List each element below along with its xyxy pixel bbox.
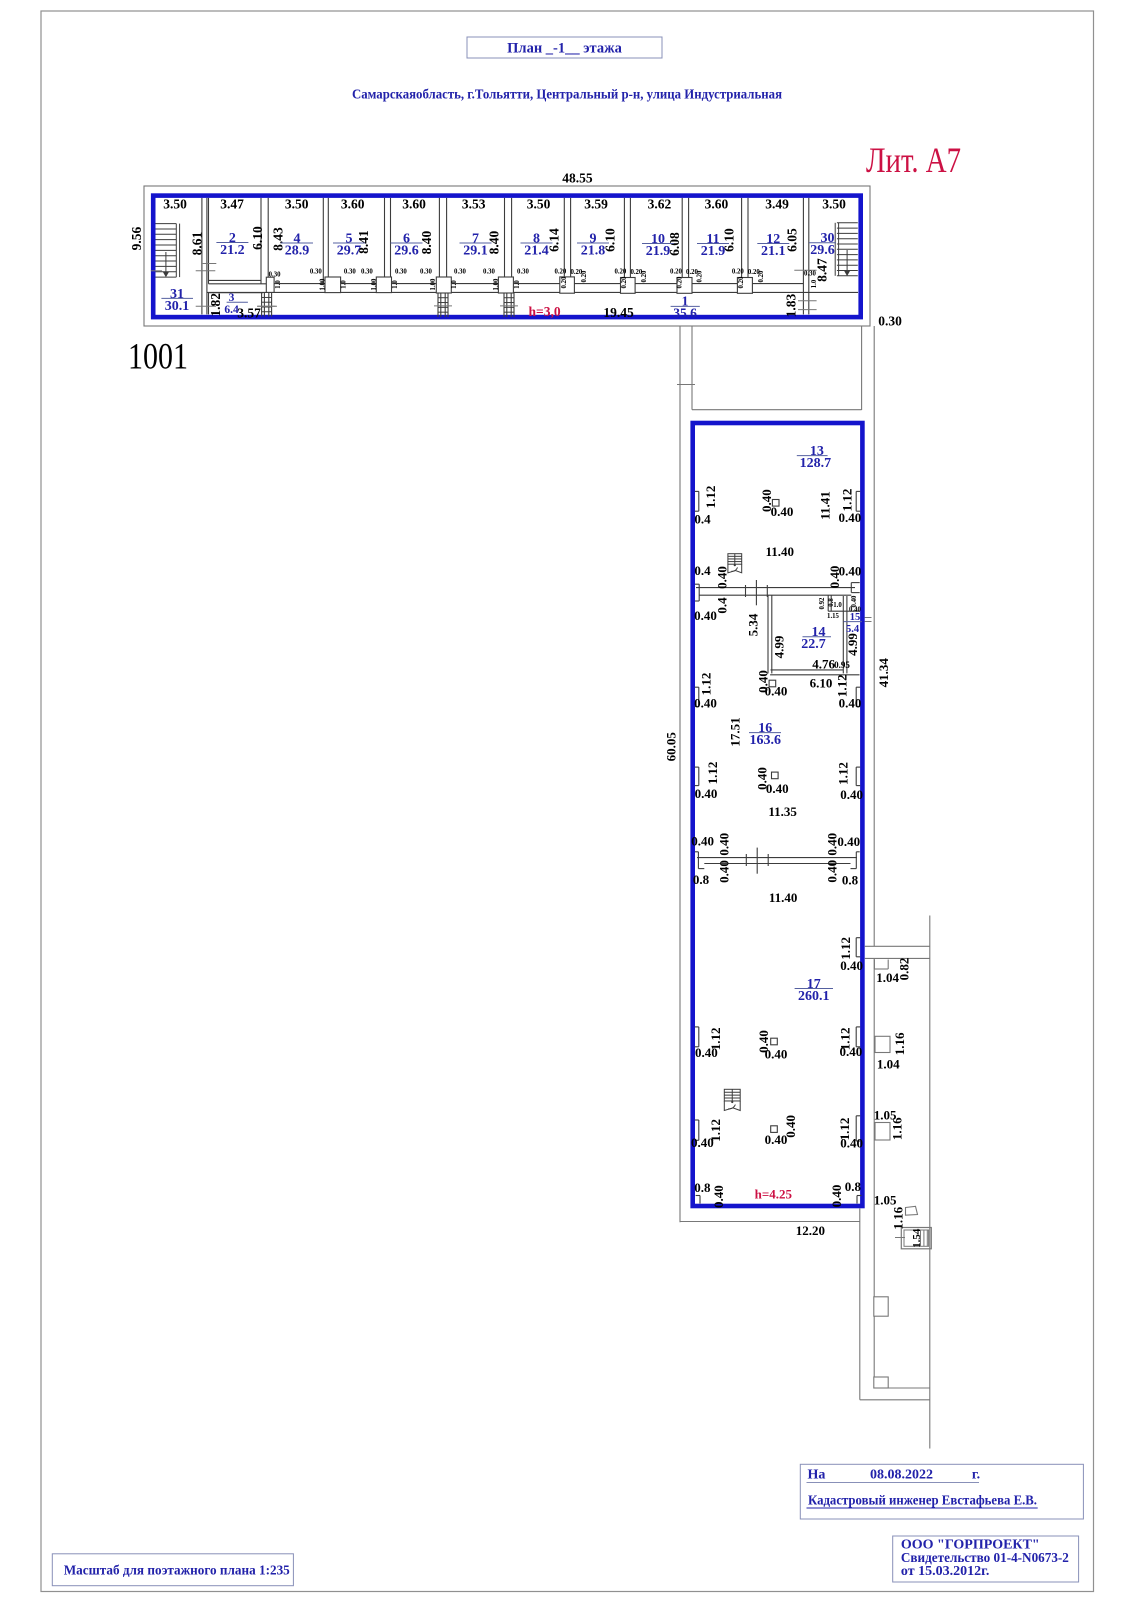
- svg-text:8.40: 8.40: [487, 230, 502, 254]
- svg-text:0.30: 0.30: [804, 271, 816, 278]
- svg-text:48.55: 48.55: [562, 170, 593, 185]
- svg-text:1.00: 1.00: [493, 278, 500, 290]
- svg-text:1.12: 1.12: [705, 762, 720, 785]
- svg-text:1.12: 1.12: [836, 762, 851, 785]
- svg-text:0.95: 0.95: [834, 660, 850, 670]
- svg-text:1.16: 1.16: [889, 1117, 904, 1140]
- svg-text:0.40: 0.40: [839, 696, 862, 711]
- svg-text:1.15: 1.15: [827, 613, 839, 620]
- svg-text:41.34: 41.34: [876, 658, 891, 688]
- svg-text:6.10: 6.10: [250, 226, 265, 250]
- svg-text:1.04: 1.04: [877, 1057, 900, 1072]
- svg-text:21.1: 21.1: [761, 244, 786, 259]
- svg-text:0.40: 0.40: [717, 833, 732, 856]
- svg-text:08.08.2022: 08.08.2022: [870, 1467, 933, 1482]
- svg-text:На: На: [808, 1467, 826, 1482]
- svg-text:3.53: 3.53: [462, 197, 486, 212]
- svg-text:11.40: 11.40: [769, 890, 798, 905]
- svg-text:0.20: 0.20: [621, 276, 628, 288]
- svg-text:0.40: 0.40: [840, 958, 863, 973]
- svg-text:3.59: 3.59: [584, 197, 608, 212]
- svg-text:4.76: 4.76: [812, 657, 835, 672]
- svg-text:1.0: 1.0: [341, 280, 348, 289]
- svg-text:0.20: 0.20: [732, 268, 744, 275]
- svg-text:1.0: 1.0: [811, 279, 818, 288]
- svg-text:3.60: 3.60: [402, 197, 426, 212]
- svg-text:0.40: 0.40: [695, 786, 718, 801]
- svg-text:1.00: 1.00: [320, 278, 327, 290]
- svg-text:0.40: 0.40: [837, 834, 860, 849]
- svg-text:8.47: 8.47: [815, 258, 830, 282]
- svg-text:0.8: 0.8: [842, 873, 859, 888]
- svg-text:0.40: 0.40: [840, 787, 863, 802]
- svg-text:0.40: 0.40: [849, 607, 861, 614]
- svg-text:8.61: 8.61: [190, 231, 205, 255]
- svg-text:Самарскаяобласть, г.Тольятти,: Самарскаяобласть, г.Тольятти, Центральны…: [352, 87, 782, 102]
- svg-text:0.20: 0.20: [738, 276, 745, 288]
- svg-text:Кадастровый инженер Евстафьева: Кадастровый инженер Евстафьева Е.В.: [808, 1493, 1037, 1508]
- svg-text:1.16: 1.16: [892, 1032, 907, 1055]
- svg-text:0.40: 0.40: [839, 564, 862, 579]
- svg-text:5.34: 5.34: [745, 613, 760, 636]
- svg-text:0.40: 0.40: [840, 1136, 863, 1151]
- svg-text:21.2: 21.2: [220, 243, 245, 258]
- svg-text:0.20: 0.20: [581, 270, 588, 282]
- svg-text:128.7: 128.7: [800, 456, 832, 471]
- svg-text:21.4: 21.4: [524, 243, 549, 258]
- svg-text:30.1: 30.1: [165, 299, 190, 314]
- svg-text:3.50: 3.50: [822, 197, 846, 212]
- svg-text:0.30: 0.30: [420, 268, 432, 275]
- svg-text:3: 3: [229, 292, 235, 304]
- svg-text:0.40: 0.40: [691, 1135, 714, 1150]
- svg-text:0.20: 0.20: [554, 268, 566, 275]
- svg-text:1.12: 1.12: [835, 674, 850, 697]
- svg-text:3.57: 3.57: [237, 305, 261, 320]
- svg-text:0.4: 0.4: [694, 512, 711, 527]
- svg-text:г.: г.: [972, 1467, 980, 1482]
- svg-text:0.40: 0.40: [765, 1132, 788, 1147]
- svg-text:1001: 1001: [128, 336, 188, 377]
- svg-text:0.40: 0.40: [691, 834, 714, 849]
- svg-text:1.54: 1.54: [911, 1228, 923, 1248]
- svg-text:0.30: 0.30: [361, 268, 373, 275]
- svg-text:29.6: 29.6: [394, 243, 419, 258]
- svg-text:11.40: 11.40: [766, 544, 795, 559]
- svg-text:0.40: 0.40: [717, 860, 732, 883]
- svg-text:6.10: 6.10: [810, 676, 833, 691]
- svg-text:0.8: 0.8: [845, 1179, 862, 1194]
- svg-text:1.12: 1.12: [838, 937, 853, 960]
- svg-text:0.40: 0.40: [711, 1185, 726, 1208]
- svg-text:0.40: 0.40: [771, 504, 794, 519]
- svg-text:1.0: 1.0: [514, 280, 521, 289]
- svg-text:260.1: 260.1: [798, 989, 830, 1004]
- svg-text:0.40: 0.40: [839, 510, 862, 525]
- svg-text:21.9: 21.9: [646, 244, 671, 259]
- svg-text:60.05: 60.05: [664, 732, 679, 762]
- svg-text:28.9: 28.9: [285, 243, 310, 258]
- svg-text:1.83: 1.83: [784, 293, 799, 317]
- svg-text:1.82: 1.82: [208, 293, 223, 317]
- svg-text:0.40: 0.40: [829, 1185, 844, 1208]
- svg-text:3.60: 3.60: [341, 197, 365, 212]
- svg-text:3.50: 3.50: [163, 197, 187, 212]
- svg-text:0.92: 0.92: [819, 597, 826, 609]
- svg-text:0.30: 0.30: [269, 271, 281, 278]
- svg-text:0.20: 0.20: [758, 270, 765, 282]
- svg-text:0.4: 0.4: [694, 563, 711, 578]
- svg-text:9.56: 9.56: [129, 226, 144, 250]
- svg-text:11.35: 11.35: [768, 804, 797, 819]
- svg-text:h=4.25: h=4.25: [755, 1187, 793, 1202]
- svg-text:1.0: 1.0: [275, 280, 282, 289]
- svg-text:21.8: 21.8: [581, 243, 606, 258]
- svg-text:1.16: 1.16: [891, 1206, 906, 1229]
- svg-text:6.05: 6.05: [785, 228, 800, 252]
- svg-text:3.49: 3.49: [765, 197, 789, 212]
- svg-text:0.30: 0.30: [454, 268, 466, 275]
- svg-text:0.40: 0.40: [825, 860, 840, 883]
- svg-text:Свидетельство 01-4-N0673-2: Свидетельство 01-4-N0673-2: [901, 1550, 1069, 1565]
- svg-text:1.12: 1.12: [699, 673, 714, 696]
- svg-text:1.00: 1.00: [371, 278, 378, 290]
- svg-text:1.0: 1.0: [451, 280, 458, 289]
- svg-text:от 15.03.2012г.: от 15.03.2012г.: [901, 1564, 989, 1579]
- svg-text:0.40: 0.40: [765, 684, 788, 699]
- svg-text:1.05: 1.05: [874, 1193, 897, 1208]
- svg-text:0.4: 0.4: [714, 597, 729, 614]
- svg-text:29.7: 29.7: [337, 243, 362, 258]
- svg-text:0.20: 0.20: [641, 270, 648, 282]
- svg-text:0.40: 0.40: [766, 781, 789, 796]
- svg-text:0.40: 0.40: [695, 1045, 718, 1060]
- svg-text:1.12: 1.12: [840, 489, 855, 512]
- svg-text:19.45: 19.45: [603, 305, 634, 320]
- svg-text:29.6: 29.6: [810, 243, 835, 258]
- svg-text:0.8: 0.8: [694, 1180, 711, 1195]
- svg-text:0.40: 0.40: [851, 595, 858, 607]
- svg-text:0.40: 0.40: [694, 696, 717, 711]
- svg-text:21.9: 21.9: [701, 244, 726, 259]
- svg-text:0.30: 0.30: [395, 268, 407, 275]
- svg-text:Лит. А7: Лит. А7: [866, 140, 961, 180]
- svg-text:3.62: 3.62: [648, 197, 672, 212]
- svg-text:0.20: 0.20: [670, 268, 682, 275]
- svg-text:29.1: 29.1: [463, 243, 488, 258]
- svg-text:0.30: 0.30: [517, 268, 529, 275]
- svg-text:35.6: 35.6: [673, 306, 697, 321]
- svg-text:План _-1__ этажа: План _-1__ этажа: [507, 41, 622, 57]
- svg-text:Масштаб для поэтажного плана 1: Масштаб для поэтажного плана 1:235: [64, 1563, 290, 1578]
- svg-text:1.0: 1.0: [833, 602, 842, 609]
- svg-text:8.43: 8.43: [271, 227, 286, 251]
- svg-text:0.30: 0.30: [310, 268, 322, 275]
- svg-text:0.20: 0.20: [561, 276, 568, 288]
- svg-text:1.12: 1.12: [703, 486, 718, 509]
- svg-text:0.30: 0.30: [344, 268, 356, 275]
- svg-text:3.47: 3.47: [220, 197, 244, 212]
- svg-text:0.30: 0.30: [483, 268, 495, 275]
- svg-text:1.0: 1.0: [392, 280, 399, 289]
- svg-text:0.82: 0.82: [897, 958, 912, 981]
- svg-text:0.30: 0.30: [878, 313, 902, 328]
- svg-text:4.99: 4.99: [845, 633, 860, 656]
- svg-text:0.40: 0.40: [765, 1047, 788, 1062]
- svg-text:0.40: 0.40: [715, 566, 730, 589]
- svg-text:3.60: 3.60: [705, 197, 729, 212]
- svg-text:3.50: 3.50: [285, 197, 309, 212]
- svg-text:8.40: 8.40: [419, 230, 434, 254]
- svg-text:0.20: 0.20: [676, 276, 683, 288]
- svg-text:163.6: 163.6: [750, 733, 782, 748]
- svg-text:h=3,0: h=3,0: [529, 304, 561, 319]
- svg-text:3.50: 3.50: [527, 197, 551, 212]
- svg-text:0.8: 0.8: [693, 872, 710, 887]
- svg-text:0.20: 0.20: [696, 270, 703, 282]
- svg-text:17.51: 17.51: [728, 717, 743, 746]
- svg-text:11.41: 11.41: [818, 491, 833, 520]
- svg-text:0.40: 0.40: [840, 1044, 863, 1059]
- svg-text:1.00: 1.00: [430, 278, 437, 290]
- svg-text:12.20: 12.20: [796, 1223, 825, 1238]
- svg-text:4.99: 4.99: [772, 635, 787, 658]
- svg-text:22.7: 22.7: [801, 637, 826, 652]
- svg-text:0.20: 0.20: [614, 268, 626, 275]
